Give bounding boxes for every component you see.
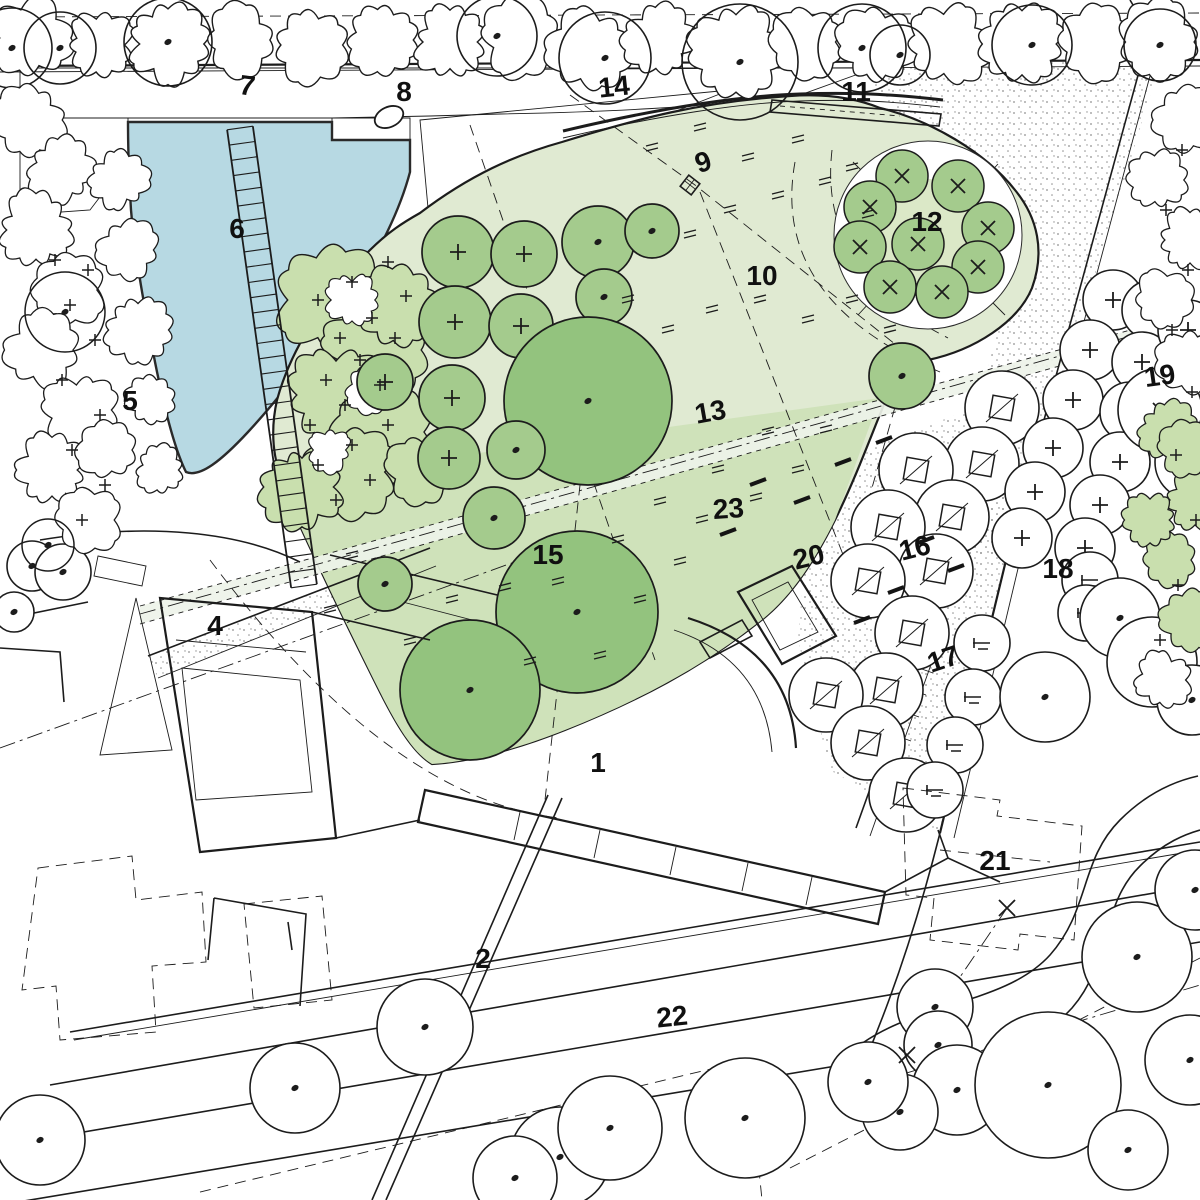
shrub-blob xyxy=(978,3,1064,83)
key-label-10: 10 xyxy=(746,260,777,291)
key-label-11: 11 xyxy=(841,76,871,107)
key-label-6: 6 xyxy=(229,213,245,244)
site-plan-page: 124567891011121314151617181920212223 xyxy=(0,0,1200,1200)
key-label-15: 15 xyxy=(532,539,563,570)
key-label-13: 13 xyxy=(692,394,728,430)
shrub-blob xyxy=(347,6,418,77)
key-label-1: 1 xyxy=(590,747,606,778)
key-label-19: 19 xyxy=(1142,358,1177,393)
site-plan-drawing: 124567891011121314151617181920212223 xyxy=(0,0,1200,1200)
shrub-blob xyxy=(276,9,348,86)
key-label-12: 12 xyxy=(911,206,942,237)
key-label-5: 5 xyxy=(122,385,138,416)
key-label-21: 21 xyxy=(979,845,1010,876)
key-label-8: 8 xyxy=(396,76,412,107)
key-label-14: 14 xyxy=(597,69,632,103)
key-label-4: 4 xyxy=(207,610,223,641)
key-label-22: 22 xyxy=(655,1000,689,1034)
key-label-2: 2 xyxy=(475,943,491,974)
key-label-18: 18 xyxy=(1042,553,1073,584)
key-label-23: 23 xyxy=(712,492,745,525)
